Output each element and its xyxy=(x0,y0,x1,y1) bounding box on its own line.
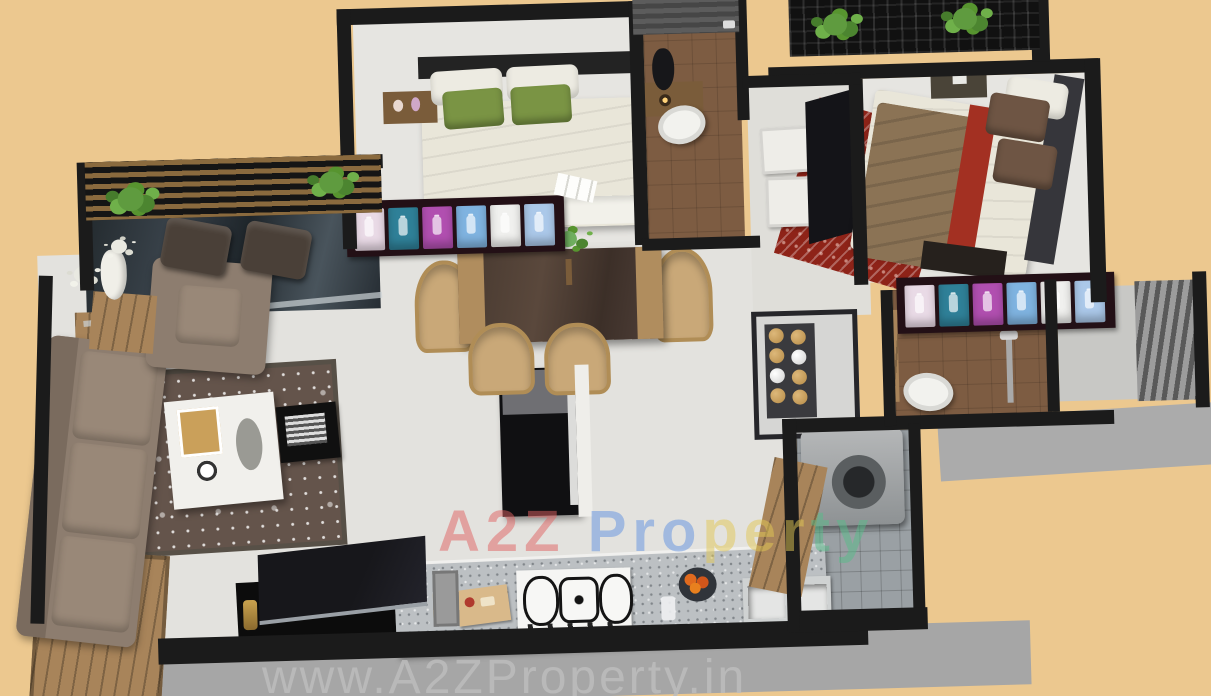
floorplan-3d-render xyxy=(0,0,1211,696)
watermark-brand: A2Z Property xyxy=(438,498,874,565)
shower-head-2-icon xyxy=(1000,330,1018,339)
wall-louver-right xyxy=(1192,271,1210,407)
tv-decor-left xyxy=(243,600,258,630)
table-decor xyxy=(196,459,224,487)
nightstand-left xyxy=(383,91,438,124)
wardrobe2-cell-4 xyxy=(1006,282,1037,325)
wardrobe2-cell-3 xyxy=(972,283,1003,326)
coffee-table xyxy=(164,392,284,510)
watermark-url: www.A2ZProperty.in xyxy=(262,650,747,696)
burner-left xyxy=(522,575,559,626)
bedroom2-planter-left xyxy=(796,0,877,51)
wall-utility-bottom xyxy=(799,607,928,633)
balcony-planter-right xyxy=(295,156,374,208)
wardrobe2-cell-2 xyxy=(938,284,969,327)
wardrobe1-cell-4 xyxy=(456,205,487,248)
louver-slats xyxy=(1134,279,1199,401)
bed1-pillow-green-right xyxy=(510,84,572,126)
white-flowers xyxy=(88,223,149,277)
wardrobe2-cell-1 xyxy=(904,285,935,328)
bedroom2-planter-right xyxy=(926,0,1007,45)
dining-chair-front-left xyxy=(467,322,535,396)
spice-rack xyxy=(432,570,460,627)
wardrobe1-cell-5 xyxy=(490,204,521,247)
shower-area xyxy=(632,0,739,35)
floorplan-image: A2Z Property www.A2ZProperty.in xyxy=(0,0,1211,696)
wardrobe1-cell-3 xyxy=(422,206,453,249)
wardrobe1-cell-6 xyxy=(524,203,555,246)
wardrobe1-cell-1 xyxy=(354,208,385,251)
balcony-planter-left xyxy=(91,170,176,226)
burner-right xyxy=(598,573,633,624)
shower-head-icon xyxy=(723,20,735,28)
table-wood-edge-right xyxy=(635,246,664,339)
watermark-seg-3: per xyxy=(702,499,810,564)
leaf-dish xyxy=(234,417,265,471)
watermark-seg-4: ty xyxy=(811,499,875,564)
drinking-glass xyxy=(661,596,676,620)
watermark-seg-2: Pro xyxy=(588,499,703,564)
burner-center xyxy=(558,576,599,623)
bed2-pillow-brown-2 xyxy=(992,138,1058,191)
bed1-pillow-green-left xyxy=(442,87,505,130)
gas-hob xyxy=(516,567,632,634)
armchair xyxy=(145,257,273,376)
watermark-seg-1: A2Z xyxy=(438,499,588,564)
magazine-table xyxy=(276,402,341,464)
cutting-board xyxy=(455,584,511,627)
wardrobe-bedroom2 xyxy=(896,272,1115,334)
coffee-table-tray xyxy=(177,406,223,458)
wardrobe1-cell-2 xyxy=(388,207,419,250)
